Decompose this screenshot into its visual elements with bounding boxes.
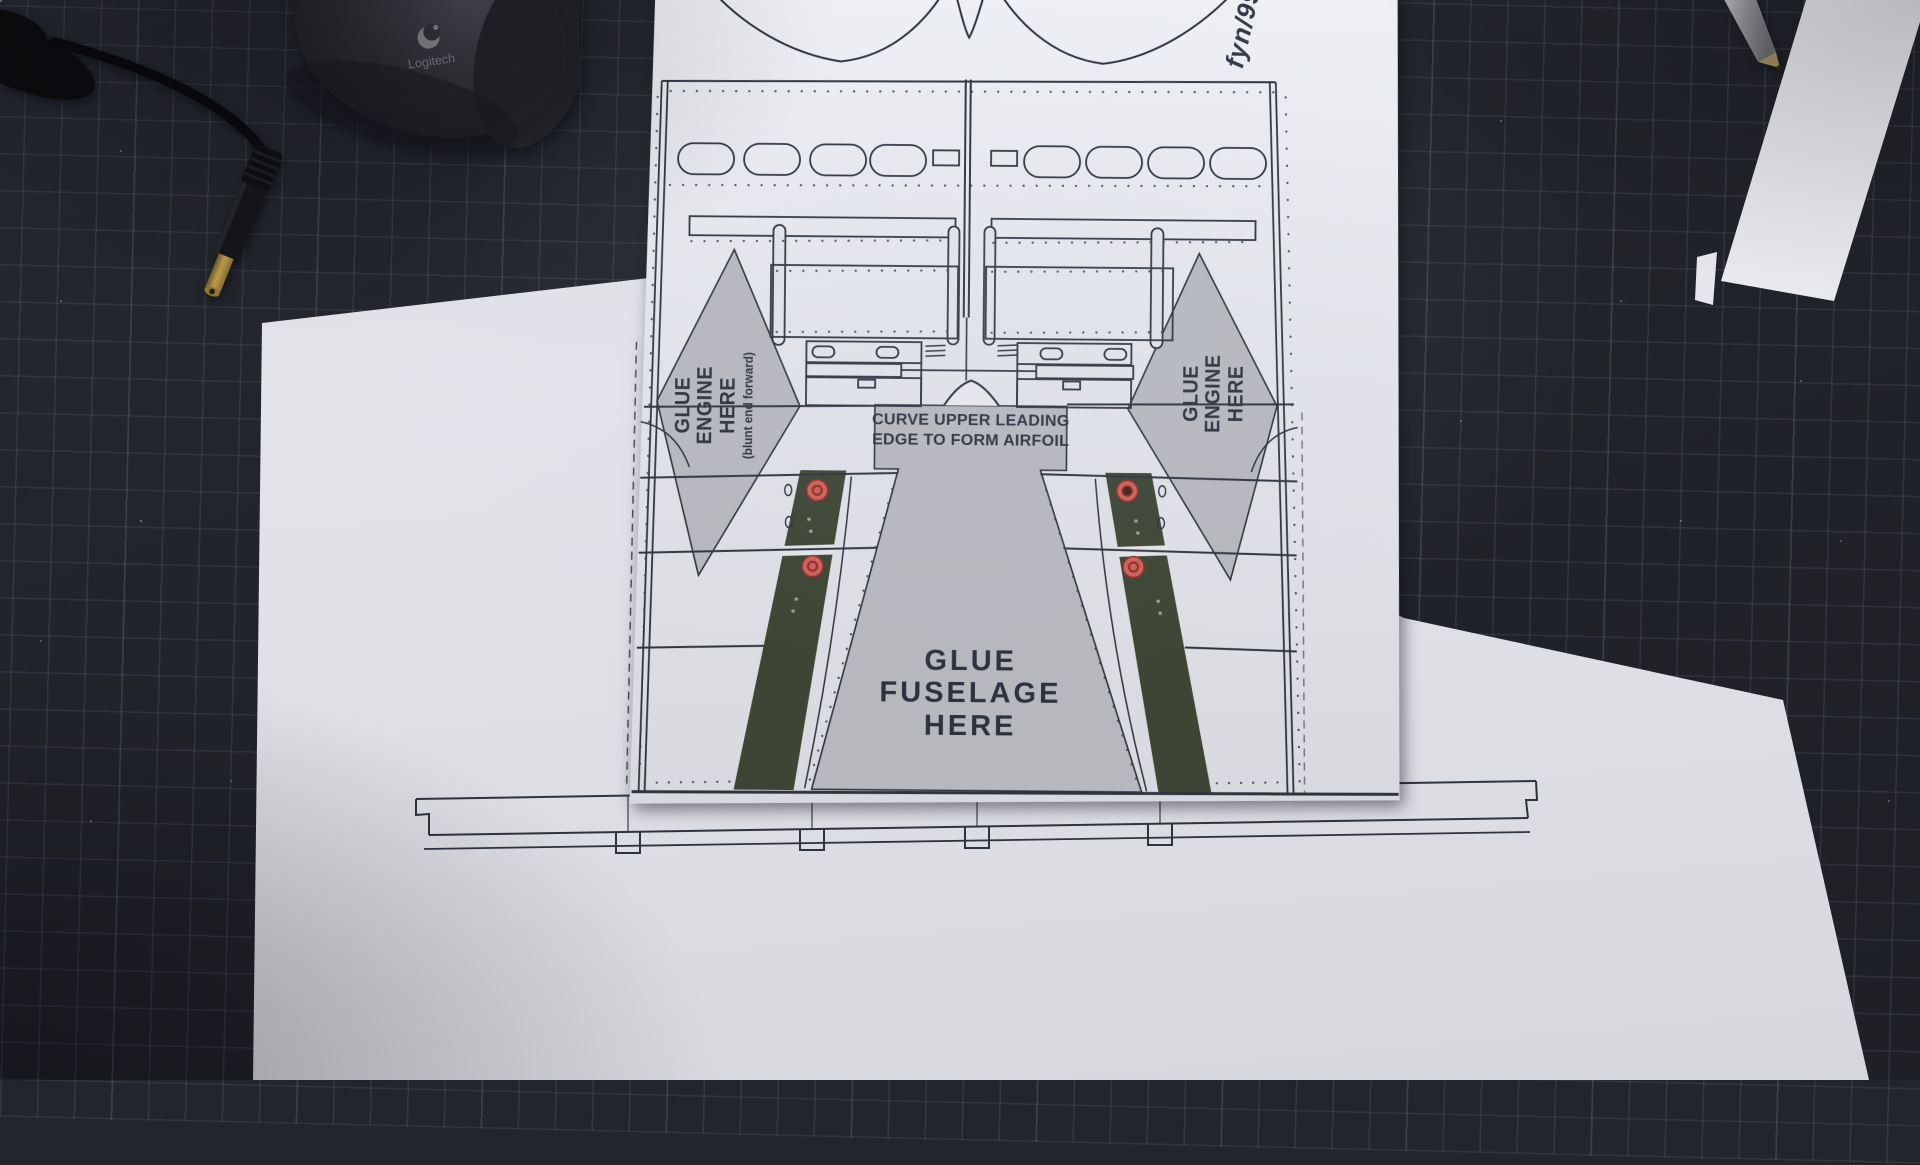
power-cable bbox=[0, 0, 340, 330]
airfoil-note: CURVE UPPER LEADING EDGE TO FORM AIRFOIL bbox=[872, 410, 1070, 451]
fuselage-label: GLUE FUSELAGE HERE bbox=[879, 644, 1062, 743]
engine-label-right: GLUE ENGINE HERE bbox=[1180, 354, 1247, 433]
engine-label-left-line: GLUE bbox=[672, 351, 695, 458]
airfoil-note-line: EDGE TO FORM AIRFOIL bbox=[872, 430, 1070, 451]
fuselage-label-line: FUSELAGE bbox=[879, 677, 1061, 711]
upper-sheet: GLUE ENGINE HERE (blunt end forward) GLU… bbox=[610, 0, 1421, 817]
fuselage-label-line: HERE bbox=[879, 709, 1061, 743]
engine-label-right-line: GLUE bbox=[1180, 354, 1203, 433]
engine-label-left-line: ENGINE bbox=[694, 352, 717, 459]
fuselage-label-line: GLUE bbox=[880, 644, 1062, 678]
barrel-connector bbox=[196, 143, 283, 301]
engine-label-right-line: HERE bbox=[1225, 355, 1248, 434]
engine-label-left-note: (blunt end forward) bbox=[742, 352, 756, 459]
engine-label-left-line: HERE bbox=[716, 352, 739, 459]
airfoil-note-line: CURVE UPPER LEADING bbox=[872, 410, 1070, 431]
engine-label-right-line: ENGINE bbox=[1203, 354, 1226, 433]
engine-label-left: GLUE ENGINE HERE (blunt end forward) bbox=[672, 351, 756, 459]
